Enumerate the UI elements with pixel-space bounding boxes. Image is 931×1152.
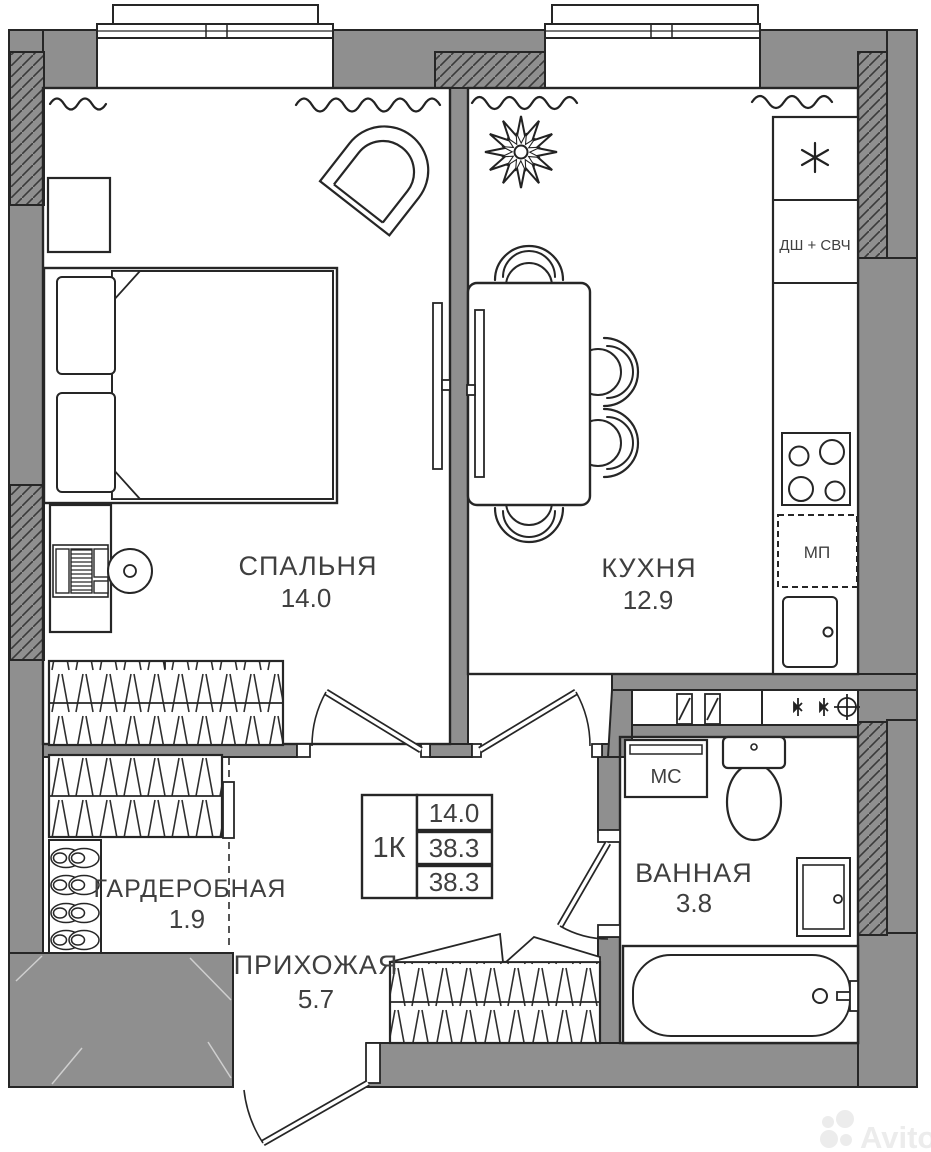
plant-icon xyxy=(515,146,528,159)
keyboard-icon xyxy=(71,549,92,593)
radiator-kitchen-left xyxy=(472,97,577,109)
bedroom-window xyxy=(97,5,333,88)
hatch-left-top xyxy=(10,52,44,205)
washing-machine: МС xyxy=(625,740,707,797)
radiator-bedroom-left xyxy=(50,99,106,110)
dishwasher-microwave-label: ДШ + СВЧ xyxy=(779,237,850,254)
radiator-waves xyxy=(50,96,832,112)
room-label-wardrobe: ГАРДЕРОБНАЯ xyxy=(94,875,287,903)
bedroom-wardrobe xyxy=(49,661,283,745)
vanity-cabinet xyxy=(797,858,850,936)
kitchen-counter: ДШ + СВЧ МП xyxy=(773,117,858,674)
wall-corner-bottom-left xyxy=(9,953,233,1087)
toilet xyxy=(723,737,785,840)
kitchen-plant xyxy=(485,116,557,188)
kitchen-window xyxy=(545,5,760,88)
wall-hall-center-stub xyxy=(430,744,472,757)
wall-bath-left-lower xyxy=(598,937,620,1043)
tv-mount xyxy=(467,385,475,395)
wall-right-mid xyxy=(858,258,917,724)
room-label-bedroom: СПАЛЬНЯ xyxy=(239,551,378,581)
hallway-closet xyxy=(390,934,600,1043)
garderob-closet xyxy=(49,755,222,837)
avito-logo-icon xyxy=(820,1130,838,1148)
legend-full-area: 38.3 xyxy=(429,867,480,897)
desk xyxy=(50,505,111,632)
nightstand xyxy=(48,178,110,252)
wall-kitchen-bath xyxy=(612,674,917,690)
room-label-kitchen: КУХНЯ xyxy=(601,553,696,583)
hatch-right-low xyxy=(858,722,887,935)
pipe-boxes xyxy=(677,694,720,724)
desk-chair xyxy=(108,549,152,593)
wall-bedroom-kitchen-divider xyxy=(450,88,468,757)
entrance-door xyxy=(244,1083,368,1143)
kitchen-door xyxy=(480,692,590,750)
legend-type: 1К xyxy=(372,832,405,864)
pillow xyxy=(57,277,115,374)
bedroom-door xyxy=(312,692,421,750)
burner-icon xyxy=(789,477,813,501)
watermark-text: Avito xyxy=(860,1120,931,1152)
radiator-kitchen-right xyxy=(752,96,832,108)
burner-icon xyxy=(790,447,809,466)
floor-plan: ДШ + СВЧ МП xyxy=(0,0,931,1152)
avito-logo-icon xyxy=(840,1134,852,1146)
blanket xyxy=(112,271,333,499)
room-area-bedroom: 14.0 xyxy=(281,583,332,613)
avito-logo-icon xyxy=(822,1116,834,1128)
oven-cabinet xyxy=(783,597,837,667)
window-bay xyxy=(545,38,760,88)
room-area-wardrobe: 1.9 xyxy=(169,904,205,934)
room-area-hallway: 5.7 xyxy=(298,984,334,1014)
tv-bedroom-icon xyxy=(433,303,442,469)
wall-bath-top xyxy=(632,725,858,737)
avito-logo-icon xyxy=(836,1110,854,1128)
burner-icon xyxy=(820,440,844,464)
radiator-bedroom-right xyxy=(296,99,440,112)
room-area-kitchen: 12.9 xyxy=(623,585,674,615)
tv-mount xyxy=(442,380,450,390)
dining-set xyxy=(468,246,638,542)
burner-icon xyxy=(826,482,845,501)
pillow xyxy=(57,393,115,492)
plumbing-niche xyxy=(762,690,860,725)
wall-right-low xyxy=(887,720,917,937)
legend-total-area: 38.3 xyxy=(429,833,480,863)
entrance-opening xyxy=(234,1041,366,1089)
balcony-outline xyxy=(113,5,318,25)
bed xyxy=(44,268,337,503)
floor-plan-svg: ДШ + СВЧ МП xyxy=(0,0,931,1152)
room-label-bathroom: ВАННАЯ xyxy=(635,858,753,888)
wall-bath-left-upper xyxy=(598,757,620,832)
wall-right-top xyxy=(887,30,917,260)
room-area-bathroom: 3.8 xyxy=(676,888,712,918)
legend-living-area: 14.0 xyxy=(429,798,480,828)
window-bay xyxy=(97,38,333,88)
armchair xyxy=(320,109,446,236)
hatch-right-top xyxy=(858,52,887,258)
garderob-sliding-door xyxy=(223,758,234,948)
hatch-left-mid xyxy=(10,485,44,660)
stove xyxy=(782,433,850,505)
hatch-top-center xyxy=(435,52,557,88)
balcony-outline xyxy=(552,5,758,25)
room-label-hallway: ПРИХОЖАЯ xyxy=(234,950,399,980)
mp-label: МП xyxy=(804,543,830,562)
ms-label: МС xyxy=(650,766,681,788)
tv-kitchen-icon xyxy=(475,310,484,477)
bathtub xyxy=(623,946,858,1043)
wall-right-bottom xyxy=(858,933,917,1087)
dining-table xyxy=(468,283,590,505)
avito-watermark: Avito xyxy=(820,1110,931,1152)
